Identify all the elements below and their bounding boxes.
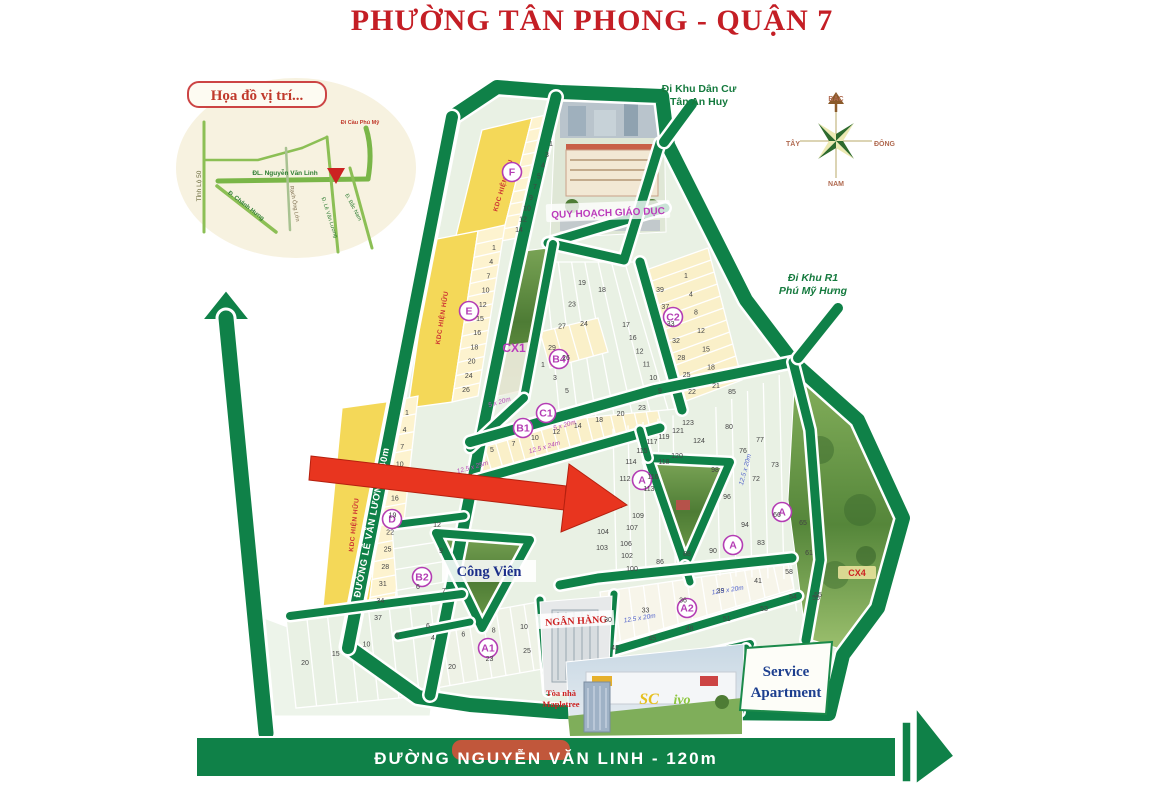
inset-road-label: Đi Cầu Phú Mỹ	[341, 120, 380, 126]
plot-number: 20	[617, 411, 625, 418]
plot-number: 10	[531, 435, 539, 442]
compass-north-label: BẮC	[828, 94, 843, 103]
plot-number: 16	[629, 335, 637, 342]
plot-number: 12	[636, 348, 644, 355]
block-code-label: A	[729, 540, 737, 552]
plot-number: 7	[511, 441, 515, 448]
plot-number: 9	[658, 388, 662, 395]
plot-number: 66	[773, 512, 781, 519]
plot-number: 12	[433, 522, 441, 529]
sc-logo: SC	[639, 691, 659, 708]
plot-number: 86	[656, 559, 664, 566]
plot-number: 121	[672, 428, 684, 435]
plot-number: 61	[805, 550, 813, 557]
tan-an-huy-label-2: Tân An Huy	[670, 96, 728, 108]
compass-south-label: NAM	[828, 181, 844, 188]
plot-number: 5	[565, 388, 569, 395]
plot-number: 7	[442, 588, 446, 595]
block-code-label: A	[638, 475, 646, 487]
plot-number: 23	[638, 405, 646, 412]
block-code-label: E	[465, 306, 472, 318]
plot-number: 3	[545, 152, 549, 159]
plot-number: 28	[677, 355, 685, 362]
map-page: PHƯỜNG TÂN PHONG - QUẬN 7	[0, 0, 1170, 785]
plot-number: 73	[771, 462, 779, 469]
east-arrow-bar	[902, 722, 911, 782]
plot-number: 85	[728, 389, 736, 396]
plot-number: 37	[661, 304, 669, 311]
plot-number: 26	[562, 355, 570, 362]
plot-number: 28	[381, 564, 389, 571]
plot-number: 32	[672, 338, 680, 345]
plot-number: 118	[658, 459, 669, 466]
plot-number: 14	[515, 227, 523, 234]
plot-number: 10	[649, 375, 657, 382]
plot-number: 6	[416, 584, 420, 591]
plot-number: 77	[756, 437, 764, 444]
plot-number: 114	[625, 459, 636, 466]
inset-road-label: ĐL. Nguyễn Văn Linh	[252, 168, 317, 177]
plot-number: 102	[621, 553, 633, 560]
plot-number: 23	[486, 656, 494, 663]
plot-number: 12	[697, 328, 705, 335]
plot-number: 117	[646, 439, 657, 446]
plot-number: 4	[541, 163, 545, 170]
plot-number: 103	[596, 545, 608, 552]
plot-number: 113	[643, 486, 654, 493]
plot-number: 22	[688, 389, 696, 396]
plot-number: 10	[363, 642, 371, 649]
plot-number: 25	[384, 547, 392, 554]
plot-number: 53	[760, 606, 768, 613]
tan-an-huy-label-1: Đi Khu Dân Cư	[662, 83, 737, 95]
plot-number: 3	[553, 375, 557, 382]
plot-number: 30	[604, 617, 612, 624]
plot-number: 18	[471, 344, 479, 351]
plot-number: 48	[686, 626, 694, 633]
service-apartment-zone: Service Apartment	[740, 642, 832, 714]
plot-number: 21	[712, 383, 720, 390]
plot-number: 8	[395, 632, 399, 639]
plot-number: 39	[656, 287, 664, 294]
plot-number: 107	[626, 525, 638, 532]
plot-number: 96	[723, 494, 731, 501]
plot-number: 1	[549, 141, 553, 148]
inset-title: Họa đồ vị trí...	[211, 88, 304, 104]
plot-number: 20	[468, 359, 476, 366]
plot-number: 1	[541, 362, 545, 369]
plot-number: 55	[812, 595, 820, 602]
plot-number: 10	[520, 624, 528, 631]
plot-number: 25	[523, 648, 531, 655]
plot-number: 9	[529, 195, 533, 202]
plot-number: 120	[671, 453, 683, 460]
plot-number: 119	[658, 434, 669, 441]
plot-number: 4	[431, 635, 435, 642]
plot-number: 104	[597, 529, 609, 536]
phu-my-hung-label-1: Đi Khu R1	[788, 272, 838, 284]
plot-number: 109	[632, 513, 644, 520]
plot-number: 29	[548, 345, 556, 352]
plot-number: 65	[799, 520, 807, 527]
road-label-nguyen-van-linh: ĐƯỜNG NGUYỄN VĂN LINH - 120m	[374, 749, 717, 768]
plot-number: 4	[489, 259, 493, 266]
block-code-label: A1	[481, 643, 495, 655]
plot-number: 20	[448, 664, 456, 671]
plot-number: 6	[461, 631, 465, 638]
plot-number: 41	[754, 578, 762, 585]
plot-number: 19	[389, 513, 397, 520]
plot-number: 17	[622, 322, 630, 329]
mapletree-label-1: Tòa nhà	[546, 688, 577, 698]
block-code-label: C1	[539, 408, 553, 420]
plot-number: 6	[426, 623, 430, 630]
compass-west-label: TÂY	[786, 139, 800, 148]
plot-number: 25	[683, 372, 691, 379]
plot-number: 24	[580, 321, 588, 328]
plot-number: 16	[391, 495, 399, 502]
service-apartment-label-1: Service	[763, 664, 810, 680]
plot-number: 4	[689, 291, 693, 298]
block-code-label: F	[509, 167, 516, 179]
plot-number: 11	[643, 362, 650, 369]
plot-number: 54	[789, 594, 797, 601]
school-roof	[566, 144, 658, 150]
block-code-label: B2	[415, 572, 429, 584]
plot-number: 112	[619, 476, 630, 483]
plot-number: 7	[533, 184, 537, 191]
plot-number: 1	[492, 245, 496, 252]
cx1-label: CX1	[502, 341, 526, 355]
ivo-logo: ivo	[673, 693, 690, 708]
plot-number: 19	[578, 280, 586, 287]
plot-number: 98	[711, 467, 719, 474]
plot-number: 58	[785, 569, 793, 576]
compass-rose: BẮC NAM TÂY ĐÔNG	[786, 92, 896, 188]
cx4-label: CX4	[848, 568, 866, 578]
plot-number: 33	[667, 321, 675, 328]
plot-number: 8	[694, 310, 698, 317]
plot-number: 15	[476, 316, 484, 323]
plot-number: 31	[379, 581, 387, 588]
plot-number: 7	[486, 273, 490, 280]
plot-number: 36	[679, 598, 687, 605]
plot-number: 94	[741, 522, 749, 529]
plot-number: 116	[647, 474, 658, 481]
plot-number: 72	[752, 476, 760, 483]
plot-number: 80	[725, 424, 733, 431]
plot-number: 34	[377, 598, 385, 605]
plot-number: 18	[707, 365, 715, 372]
plot-number: 83	[757, 540, 765, 547]
plot-number: 27	[558, 323, 566, 330]
plot-number: 20	[301, 660, 309, 667]
plot-number: 37	[374, 615, 382, 622]
plot-number: 16	[473, 330, 481, 337]
inset-road-label: Tỉnh Lộ 50	[195, 170, 203, 201]
cong-vien-label: Công Viên	[457, 564, 522, 580]
plot-number: 24	[465, 373, 473, 380]
map-canvas: PHƯỜNG TÂN PHONG - QUẬN 7	[0, 0, 1170, 785]
plot-number: 23	[568, 302, 576, 309]
plot-number: 124	[693, 438, 705, 445]
nguyen-huu-tho-road: ĐƯỜNG NGUYỄN HỮU THỌ - 60m	[202, 290, 271, 733]
plot-number: 10	[523, 206, 531, 213]
plot-number: 12	[519, 216, 527, 223]
east-arrow-road	[916, 708, 954, 784]
block-code-label: B1	[516, 423, 530, 435]
page-title: PHƯỜNG TÂN PHONG - QUẬN 7	[351, 4, 834, 37]
plot-number: 1	[405, 410, 409, 417]
plot-number: 22	[386, 530, 394, 537]
plot-number: 1	[684, 273, 688, 280]
plot-number: 8	[492, 628, 496, 635]
plot-number: 10	[482, 288, 490, 295]
service-apartment-label-2: Apartment	[751, 685, 822, 701]
inset-location-map: Họa đồ vị trí... Tỉnh Lộ 50ĐL. Nguyễn Vă…	[176, 78, 416, 258]
plot-number: 5	[490, 447, 494, 454]
park-building	[676, 500, 690, 510]
plot-number: 90	[709, 548, 717, 555]
plot-number: 123	[682, 420, 694, 427]
plot-number: 15	[332, 651, 340, 658]
mapletree-label-2: Mapletree	[542, 699, 579, 709]
plot-number: 9	[439, 548, 443, 555]
plot-number: 45	[648, 635, 656, 642]
phu-my-hung-label-2: Phú Mỹ Hưng	[779, 285, 848, 297]
plot-number: 42	[611, 645, 619, 652]
plot-number: 5	[537, 173, 541, 180]
compass-east-label: ĐÔNG	[874, 139, 896, 148]
plot-number: 88	[683, 551, 691, 558]
plot-number: 7	[400, 444, 404, 451]
plot-number: 26	[462, 387, 470, 394]
plot-number: 18	[595, 417, 603, 424]
plot-number: 115	[636, 448, 647, 455]
plot-number: 106	[620, 541, 632, 548]
plot-number: 18	[598, 287, 606, 294]
plot-number: 12	[479, 302, 487, 309]
plot-number: 4	[403, 427, 407, 434]
plot-number: 100	[626, 566, 638, 573]
plot-number: 51	[723, 616, 731, 623]
plot-number: 15	[702, 346, 710, 353]
